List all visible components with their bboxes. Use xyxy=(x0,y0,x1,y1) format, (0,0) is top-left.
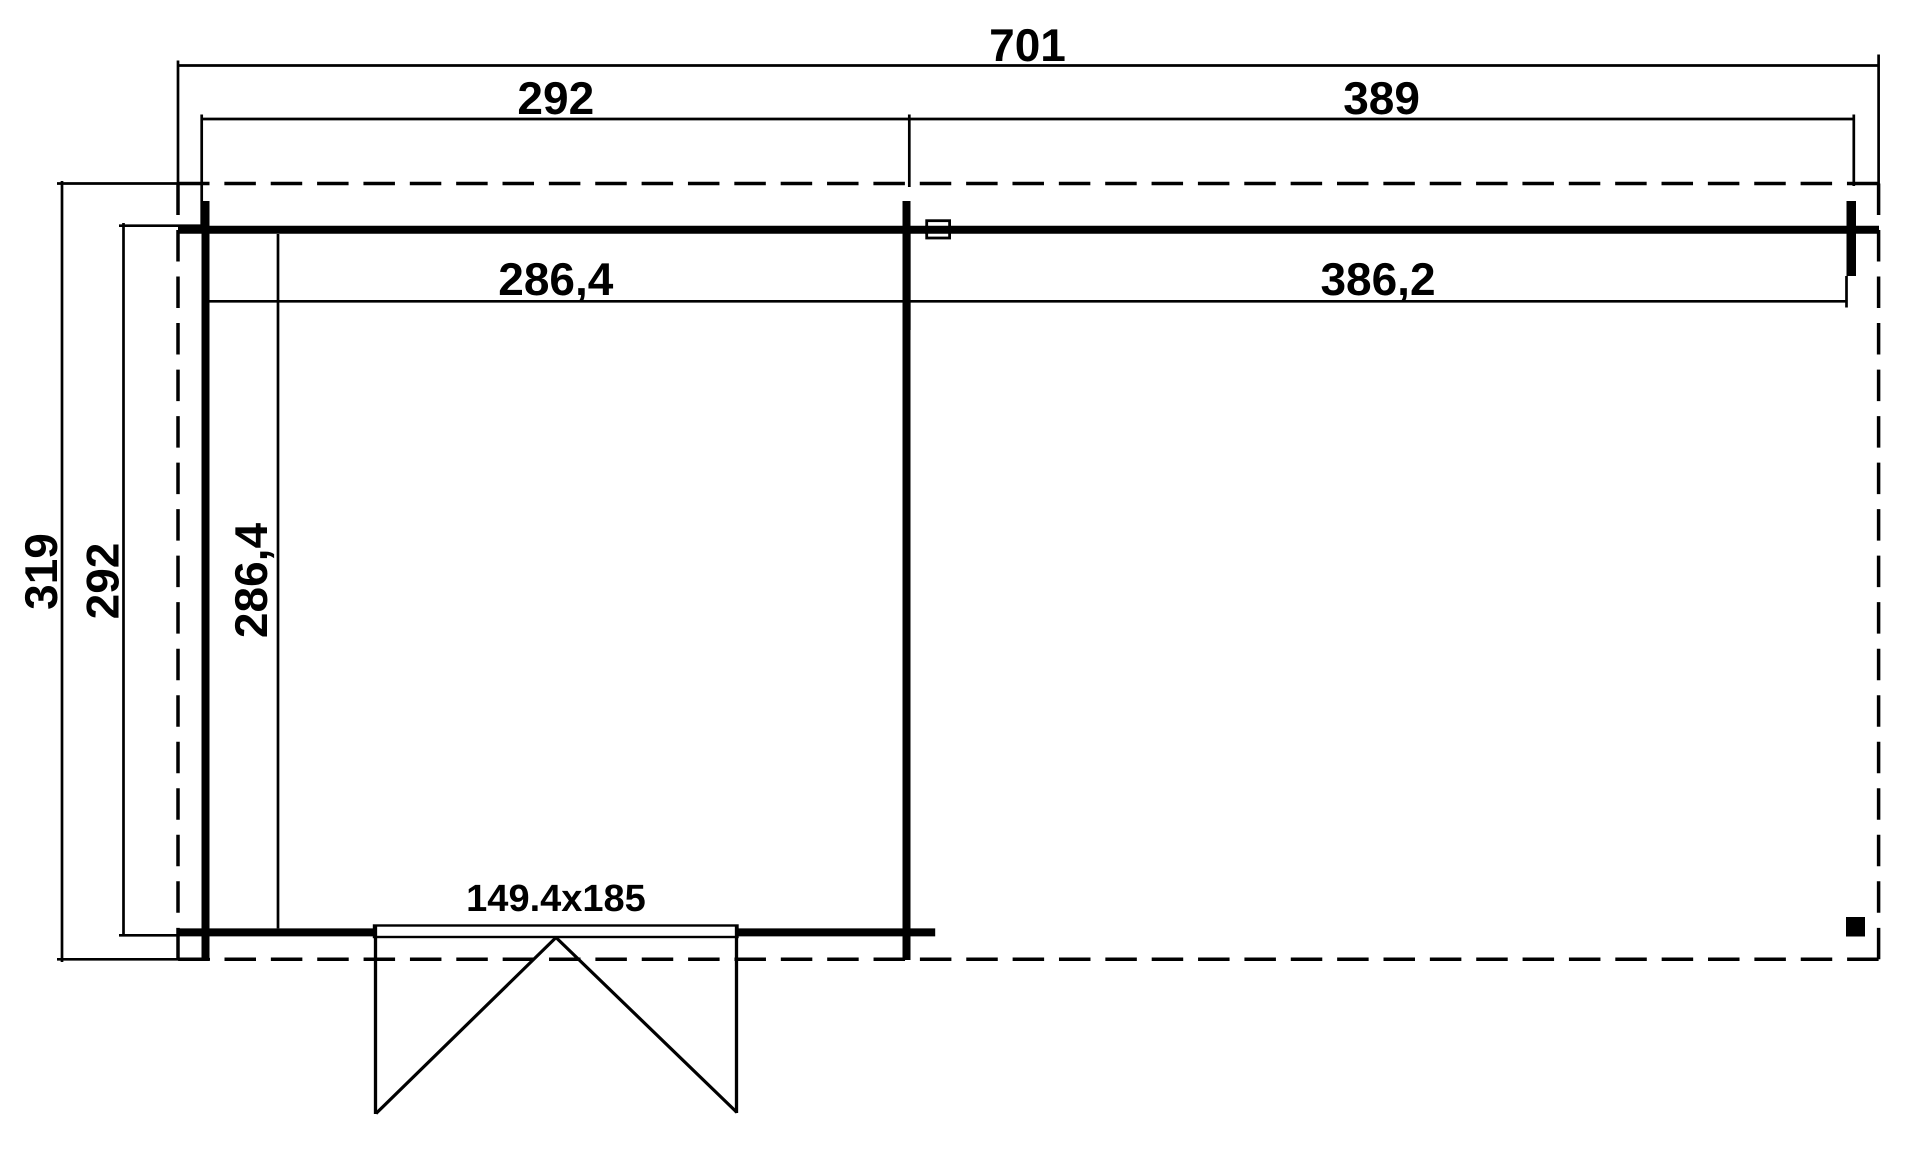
svg-text:286,4: 286,4 xyxy=(225,523,277,639)
svg-text:386,2: 386,2 xyxy=(1320,253,1435,305)
svg-text:149.4x185: 149.4x185 xyxy=(466,878,646,920)
svg-text:319: 319 xyxy=(15,533,67,610)
svg-text:286,4: 286,4 xyxy=(498,253,614,305)
svg-text:389: 389 xyxy=(1343,72,1420,124)
svg-text:701: 701 xyxy=(989,19,1066,71)
svg-text:292: 292 xyxy=(77,543,129,620)
svg-text:292: 292 xyxy=(517,72,594,124)
